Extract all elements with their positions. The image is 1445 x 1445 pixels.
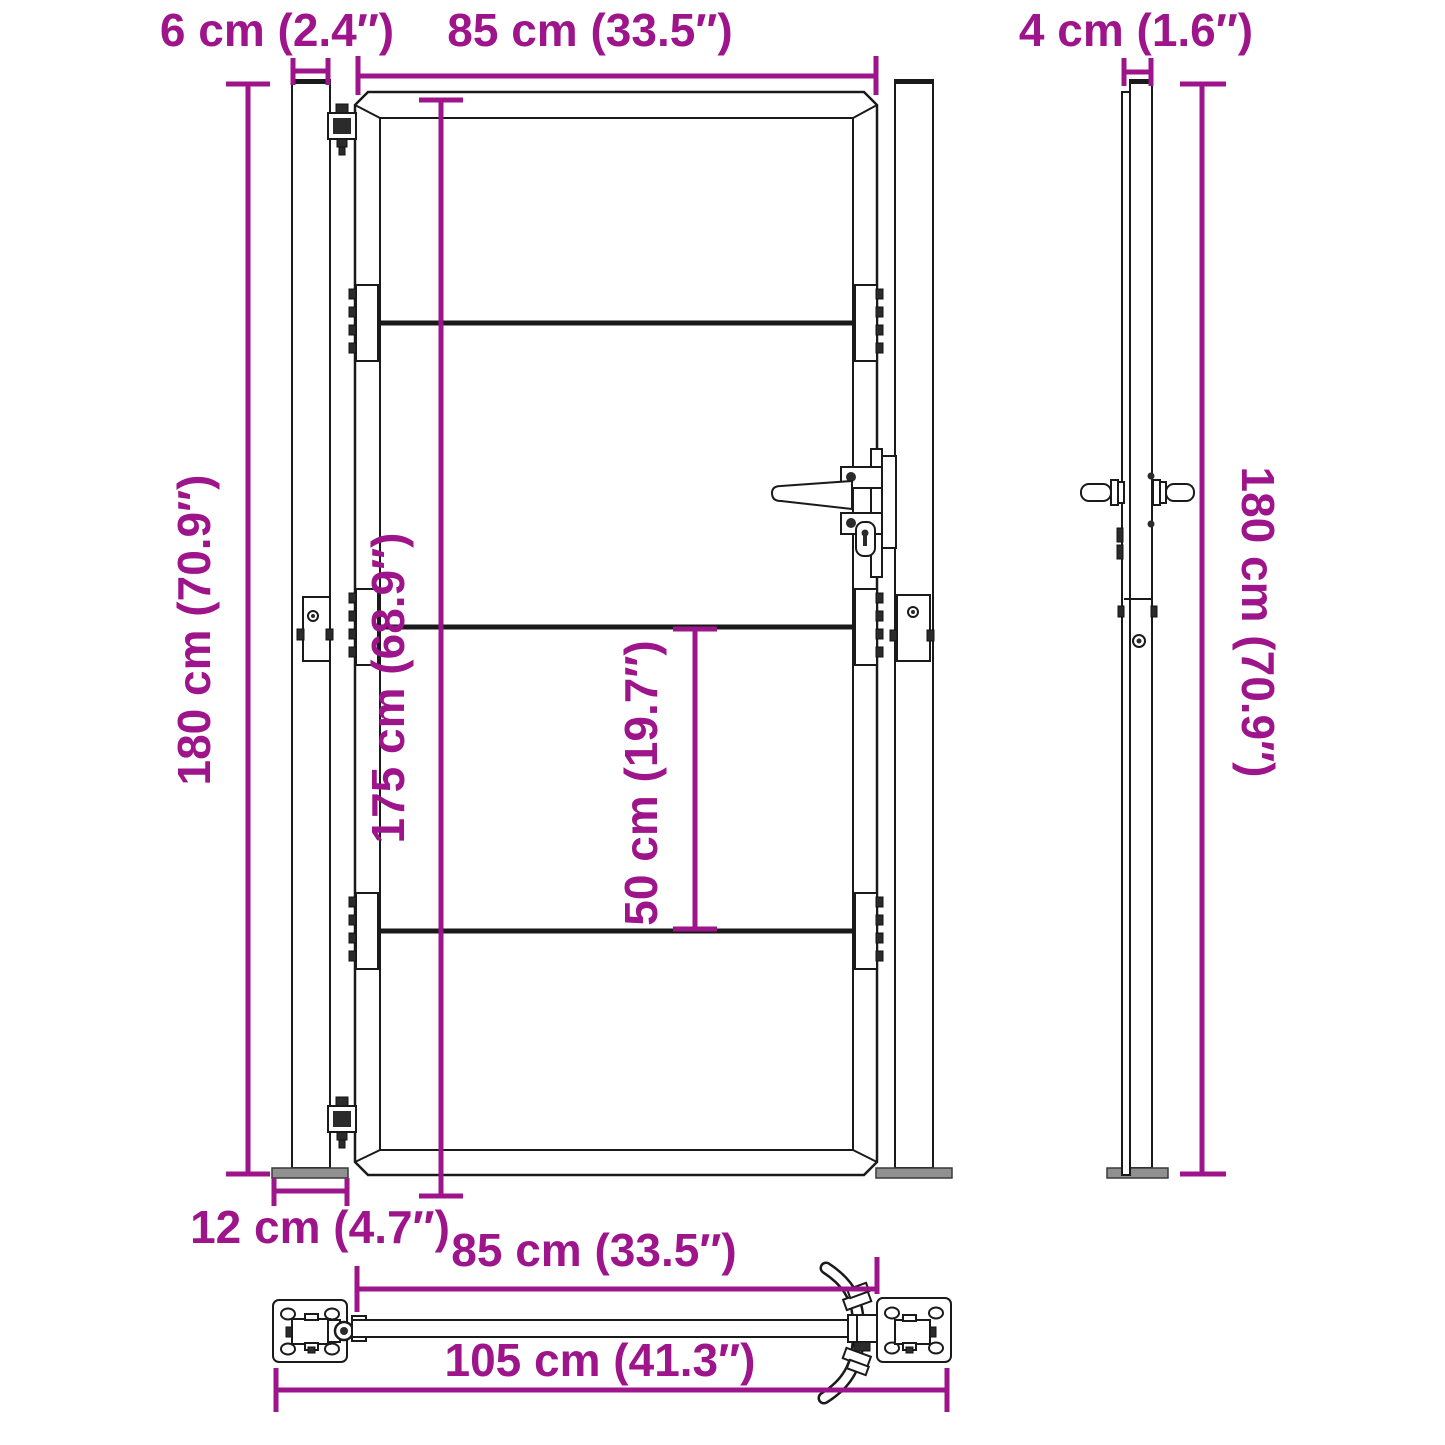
top-hinge-pivot [328,1320,353,1342]
striker-plate [882,456,896,548]
top-right-post-section [895,1320,930,1344]
left-post-base-plate [272,1168,348,1178]
side-post [1107,80,1168,1178]
label-top-gate-width: 85 cm (33.5″) [451,1224,736,1276]
label-total-height-right: 180 cm (70.9″) [1232,467,1284,778]
diagram-canvas: 6 cm (2.4″) 85 cm (33.5″) 180 cm (70.9″)… [0,0,1445,1445]
dim-gate-width [356,56,879,95]
label-profile-depth: 4 cm (1.6″) [1019,4,1253,56]
mid-hinge-plate-right [890,595,934,661]
side-view: 4 cm (1.6″) 180 cm (70.9″) [1019,4,1284,1178]
side-base-plate [1107,1168,1168,1178]
bottom-hinge [328,1097,356,1148]
top-right-plate [877,1298,951,1362]
top-hinge [328,104,356,155]
top-left-post-section [292,1319,330,1344]
label-post-width: 6 cm (2.4″) [160,4,394,56]
front-view: 6 cm (2.4″) 85 cm (33.5″) 180 cm (70.9″)… [160,4,952,1253]
mid-hinge-plate-left [297,597,333,661]
label-base-plate-width: 12 cm (4.7″) [190,1201,450,1253]
dimension-diagram: 6 cm (2.4″) 85 cm (33.5″) 180 cm (70.9″)… [0,0,1445,1445]
label-total-height-left: 180 cm (70.9″) [168,475,220,786]
label-gate-height: 175 cm (68.9″) [362,533,414,844]
right-post-base-plate [876,1168,952,1178]
label-rail-spacing: 50 cm (19.7″) [615,640,667,925]
dim-total-height-left [226,84,270,1174]
label-total-width: 105 cm (41.3″) [445,1334,756,1386]
gate-frame [355,92,877,1175]
label-gate-width: 85 cm (33.5″) [447,4,732,56]
dim-total-height-right [1180,84,1226,1174]
